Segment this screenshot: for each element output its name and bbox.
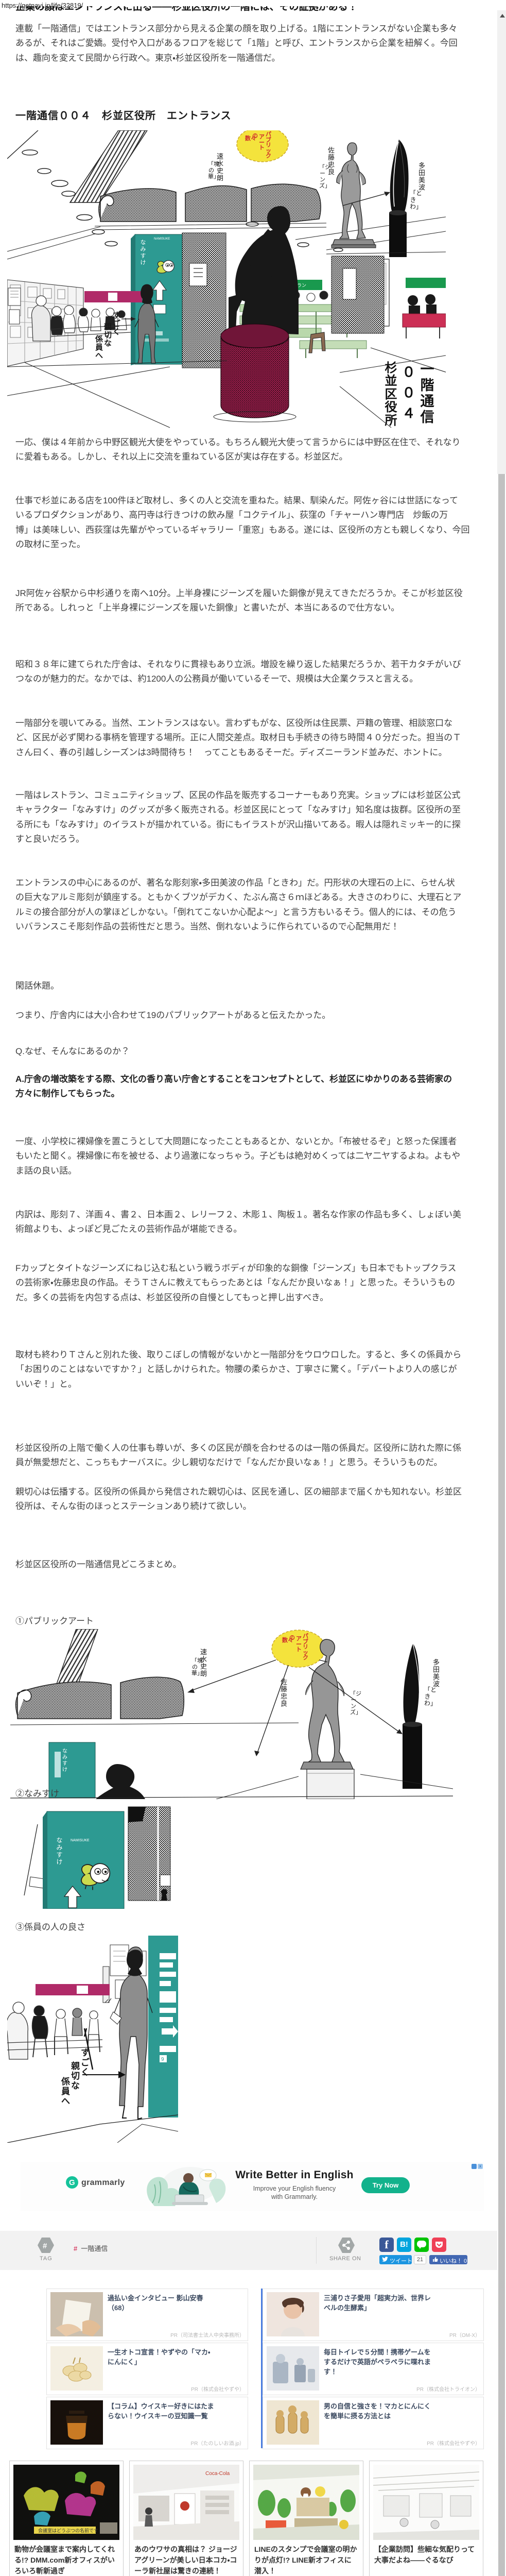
svg-text:会議室はどうぶつの名前です: 会議室はどうぶつの名前です [38, 2528, 98, 2533]
svg-text:Coca-Cola: Coca-Cola [205, 2471, 230, 2477]
svg-text:#: # [43, 2242, 47, 2250]
svg-text:9: 9 [161, 2057, 164, 2062]
svg-text:NAMISUKE: NAMISUKE [154, 238, 170, 241]
